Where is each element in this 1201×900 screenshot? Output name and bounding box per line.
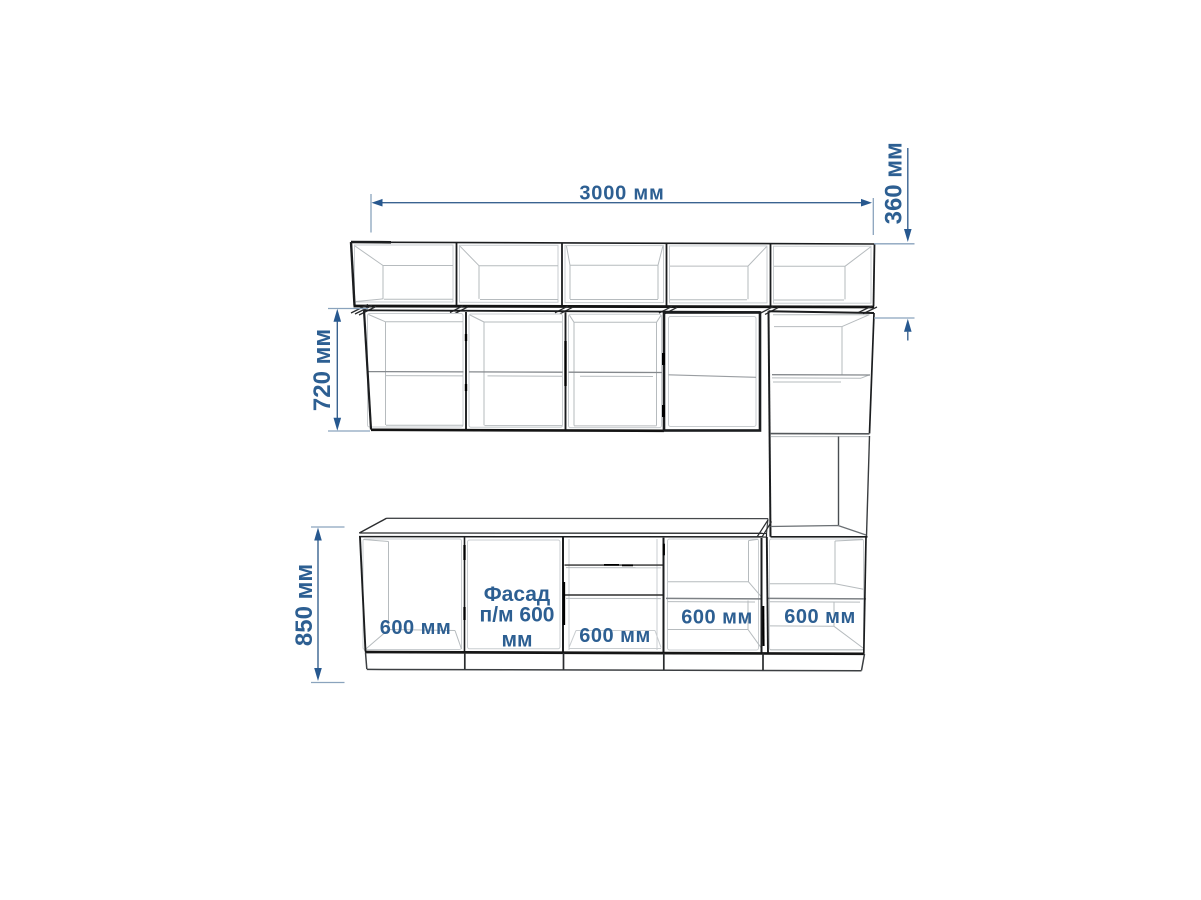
svg-text:850 мм: 850 мм bbox=[291, 564, 318, 646]
svg-text:3000 мм: 3000 мм bbox=[579, 183, 664, 205]
svg-text:мм: мм bbox=[501, 629, 532, 652]
svg-text:600 мм: 600 мм bbox=[784, 606, 856, 628]
svg-text:720 мм: 720 мм bbox=[309, 329, 336, 411]
svg-text:п/м 600: п/м 600 bbox=[480, 604, 555, 627]
svg-text:360 мм: 360 мм bbox=[881, 142, 908, 224]
svg-text:600 мм: 600 мм bbox=[579, 625, 651, 647]
svg-text:600 мм: 600 мм bbox=[681, 607, 753, 629]
svg-text:600 мм: 600 мм bbox=[380, 617, 452, 639]
